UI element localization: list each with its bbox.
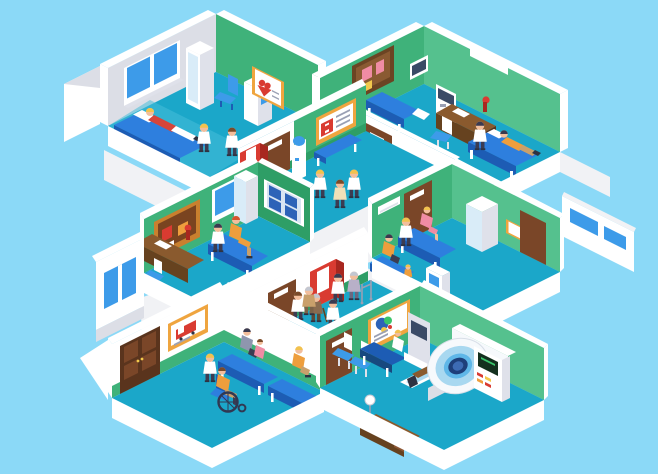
illustration-canvas: Isometric hospital interior cutaway illu… xyxy=(0,0,658,474)
ward-wardrobe xyxy=(186,41,214,110)
pediatric-cabinet xyxy=(466,196,498,252)
hospital-isometric-illustration: Isometric hospital interior cutaway illu… xyxy=(0,0,658,474)
exam-wardrobe xyxy=(234,170,258,224)
